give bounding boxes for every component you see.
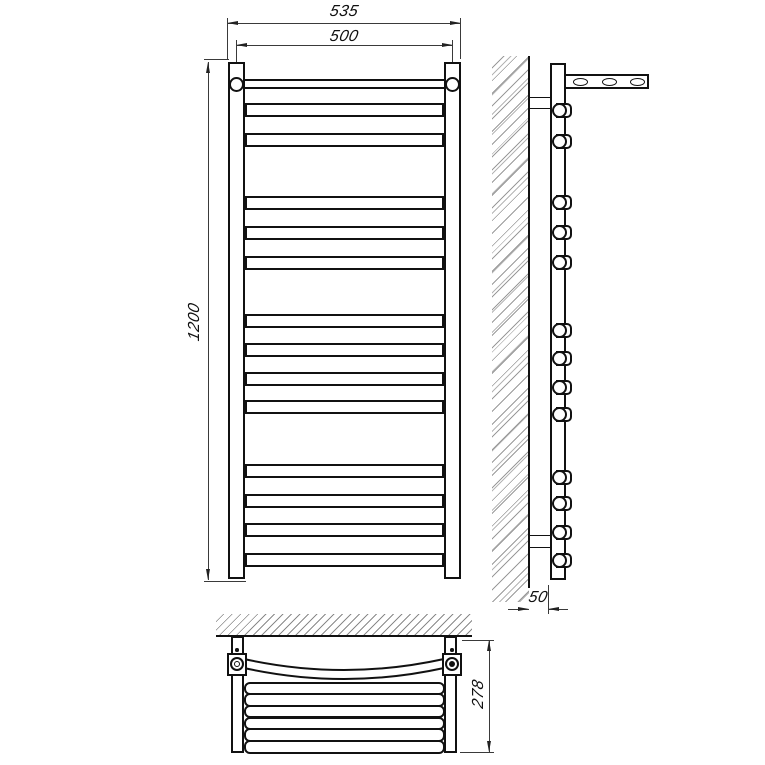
side-rung-cylinder-end — [552, 407, 567, 422]
technical-drawing-canvas: 535 500 1200 50 278 — [0, 0, 765, 765]
bottom-right-bracket-hub — [449, 661, 455, 667]
dim-arrow-535-left — [227, 21, 238, 25]
front-rung-tube — [245, 372, 444, 386]
dim-line-1200 — [208, 62, 209, 580]
dim-label-rail-width: 500 — [303, 28, 385, 46]
dim-arrow-500-left — [236, 43, 247, 47]
dim-arrow-278-top — [487, 640, 491, 651]
side-rung-cylinder-end — [552, 351, 567, 366]
front-rung-tube — [245, 494, 444, 508]
side-rung-cylinder-end — [552, 195, 567, 210]
dim-arrow-50-left — [518, 607, 529, 611]
front-rung-tube — [245, 256, 444, 270]
dim-label-overall-width: 535 — [303, 3, 385, 21]
bottom-wall-hatch — [216, 614, 472, 637]
side-rung-cylinder-end — [552, 225, 567, 240]
front-rung-tube — [245, 400, 444, 414]
front-rung-tube — [245, 196, 444, 210]
dim-arrow-1200-top — [206, 62, 210, 73]
side-arm-hole — [602, 78, 617, 86]
front-right-post — [444, 62, 461, 579]
side-rung-cylinder-end — [552, 380, 567, 395]
front-rung-tube — [245, 343, 444, 357]
bottom-flat-rung-bar — [244, 740, 445, 754]
front-left-mount-ring — [229, 77, 244, 92]
dim-arrow-50-right — [548, 607, 559, 611]
side-rung-cylinder-end — [552, 134, 567, 149]
front-left-post — [228, 62, 245, 579]
ext-line-1200-top — [204, 59, 229, 60]
bottom-left-bracket-hub — [234, 661, 240, 667]
front-rung-tube — [245, 133, 444, 147]
front-rung-tube — [245, 464, 444, 478]
dim-line-278 — [489, 640, 490, 752]
ext-line-278-bottom — [460, 752, 494, 753]
dim-label-wall-offset: 50 — [518, 589, 558, 607]
side-rung-cylinder-end — [552, 255, 567, 270]
bottom-left-screw-dot — [235, 648, 239, 652]
side-rung-cylinder-end — [552, 525, 567, 540]
front-rung-tube — [245, 226, 444, 240]
dim-line-535 — [227, 23, 461, 24]
dim-arrow-278-bottom — [487, 741, 491, 752]
dim-arrow-535-right — [450, 21, 461, 25]
side-arm-hole — [630, 78, 645, 86]
front-top-rung — [243, 79, 446, 89]
side-wall-hatch — [492, 56, 529, 602]
side-rung-cylinder-end — [552, 470, 567, 485]
dim-label-height: 1200 — [186, 298, 204, 346]
front-rung-tube — [245, 103, 444, 117]
dim-label-depth: 278 — [470, 670, 488, 718]
dim-arrow-1200-bottom — [206, 569, 210, 580]
side-wall-bracket-bottom — [529, 535, 552, 548]
side-wall-face-line — [528, 56, 530, 588]
side-rung-cylinder-end — [552, 496, 567, 511]
dim-arrow-500-right — [442, 43, 453, 47]
side-rung-cylinder-end — [552, 553, 567, 568]
ext-line-1200-bottom — [204, 581, 246, 582]
front-right-mount-ring — [445, 77, 460, 92]
side-rung-cylinder-end — [552, 323, 567, 338]
front-rung-tube — [245, 314, 444, 328]
side-arm-hole — [573, 78, 588, 86]
side-wall-bracket-top — [529, 97, 552, 109]
front-rung-tube — [245, 553, 444, 567]
bottom-right-screw-dot — [450, 648, 454, 652]
side-rung-cylinder-end — [552, 103, 567, 118]
front-rung-tube — [245, 523, 444, 537]
bottom-curved-rung — [230, 650, 460, 692]
